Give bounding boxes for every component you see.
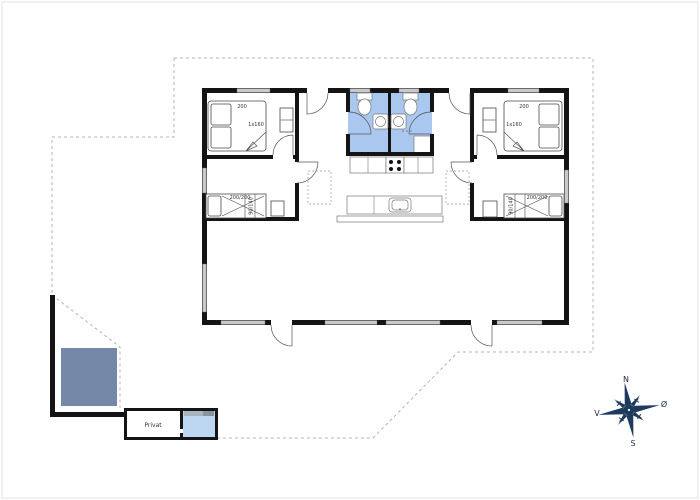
window bbox=[508, 89, 539, 93]
drain-dot bbox=[402, 130, 404, 132]
main-building: 200 1x160 200 1x160 200/200 90/140 bbox=[202, 88, 569, 346]
bedroom-mid-right: 200/200 90/140 bbox=[483, 194, 564, 218]
entrance-door-left bbox=[307, 93, 328, 114]
window bbox=[237, 89, 270, 93]
bunk-side-label: 90/140 bbox=[509, 197, 515, 215]
bedroom-door-top-left bbox=[273, 135, 293, 155]
compass-label-south: S bbox=[630, 439, 635, 448]
pillow bbox=[539, 104, 559, 125]
annex: Privat bbox=[124, 408, 218, 440]
patio-door-right bbox=[471, 325, 492, 346]
bunk-side-label: 90/140 bbox=[249, 197, 255, 215]
bedroom-top-left: 200 1x160 bbox=[208, 101, 293, 151]
window bbox=[497, 321, 542, 325]
kitchen-counter bbox=[404, 157, 433, 173]
floor-plan: Privat bbox=[0, 0, 700, 500]
site-wall-bottom bbox=[50, 412, 127, 417]
sink-basin bbox=[394, 117, 404, 127]
floor-plan-page: Privat bbox=[0, 0, 700, 500]
bed-size-label: 1x160 bbox=[248, 122, 264, 128]
bunk-label: 200/200 bbox=[527, 195, 548, 201]
shower bbox=[414, 136, 431, 153]
bedroom-mid-left: 200/200 90/140 bbox=[206, 194, 284, 218]
drain-dot bbox=[410, 130, 412, 132]
bedroom-top-right: 200 1x160 bbox=[483, 101, 562, 151]
kitchen bbox=[337, 157, 443, 222]
wardrobe bbox=[483, 201, 497, 217]
island-shelf bbox=[337, 216, 443, 222]
pillow bbox=[211, 127, 231, 148]
annex-bench-dark bbox=[203, 411, 214, 416]
window bbox=[325, 321, 377, 325]
compass-label-west: V bbox=[594, 409, 600, 418]
bunk-label: 200/200 bbox=[230, 195, 251, 201]
toilet bbox=[358, 99, 371, 115]
pillow bbox=[211, 104, 231, 125]
skylight-left bbox=[308, 171, 331, 204]
window bbox=[565, 170, 569, 203]
bedroom-door-top-right bbox=[477, 135, 497, 155]
bed-width-label: 200 bbox=[237, 104, 247, 110]
compass-star bbox=[594, 377, 664, 442]
entrance-door-right bbox=[449, 93, 470, 114]
image-frame bbox=[2, 2, 698, 498]
wardrobe bbox=[271, 201, 284, 216]
pillow bbox=[549, 196, 562, 216]
window bbox=[399, 89, 419, 93]
pillow bbox=[539, 127, 559, 148]
bed-width-label: 200 bbox=[519, 104, 529, 110]
site-wall-left bbox=[50, 295, 55, 417]
compass-rose: N Ø S V bbox=[594, 375, 667, 448]
compass-label-north: N bbox=[623, 375, 629, 384]
drain-dot bbox=[406, 130, 408, 132]
sink-basin bbox=[376, 117, 386, 127]
stove bbox=[386, 157, 404, 173]
pillow bbox=[208, 196, 221, 216]
bed-size-label: 1x160 bbox=[506, 122, 522, 128]
window bbox=[386, 321, 440, 325]
patio-door-left bbox=[271, 325, 292, 346]
compass-label-east: Ø bbox=[661, 399, 667, 409]
window bbox=[350, 89, 370, 93]
terrace-pool bbox=[61, 348, 117, 406]
skylight-right bbox=[446, 171, 469, 204]
annex-room-label: Privat bbox=[144, 422, 162, 429]
bedroom-door-mid-left bbox=[297, 162, 318, 183]
window bbox=[203, 264, 207, 312]
window bbox=[221, 321, 265, 325]
window bbox=[203, 168, 207, 193]
toilet bbox=[404, 99, 417, 115]
